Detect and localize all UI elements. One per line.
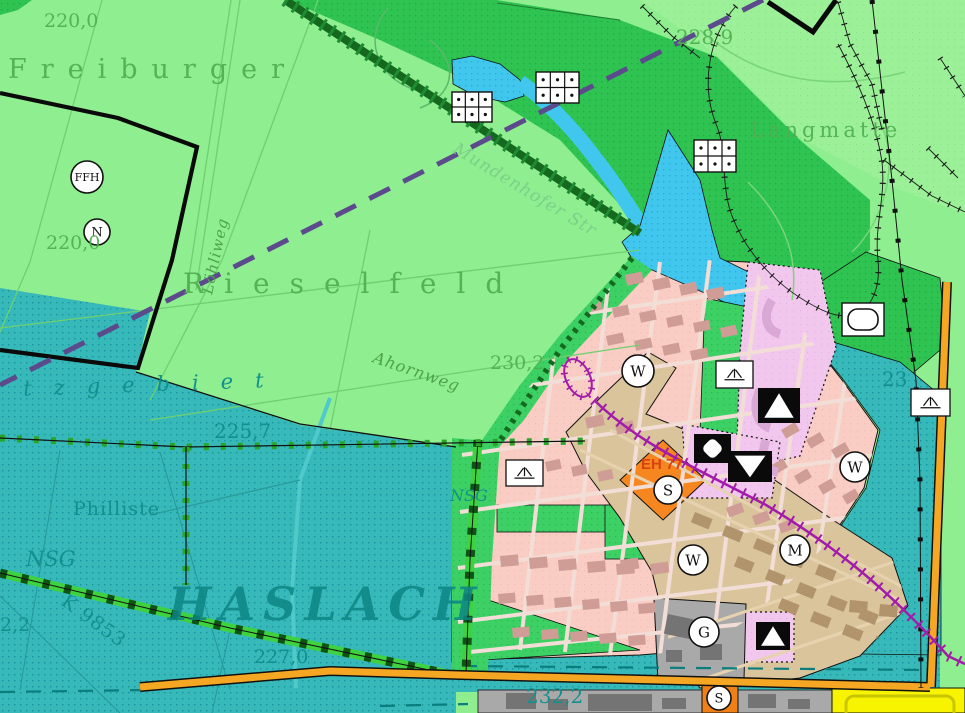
building — [570, 631, 588, 642]
zone-marker-letter: W — [630, 362, 646, 380]
zone-marker-w2: W — [840, 452, 870, 482]
sports-field-icon — [842, 303, 884, 336]
grassland-icon — [911, 389, 950, 416]
zone-marker-ffh: FFH — [71, 161, 103, 193]
label-elev-230-2: 230,2 — [490, 352, 544, 374]
zone-green-arm — [497, 505, 612, 532]
grassland-icon — [716, 361, 753, 388]
grassland-icon — [506, 460, 543, 486]
building — [610, 601, 628, 612]
building — [541, 629, 559, 640]
zone-marker-letter: W — [847, 458, 863, 476]
zone-marker-w1: W — [622, 355, 654, 387]
zone-marker-s1: S — [654, 476, 682, 504]
building — [582, 599, 600, 610]
allotment-garden-icon — [536, 72, 579, 103]
zone-marker-s2: S — [707, 686, 731, 710]
label-haslach: HASLACH — [166, 577, 484, 631]
label-elev-23: 23 — [882, 367, 907, 391]
zone-marker-letter: FFH — [75, 171, 100, 184]
label-eh77: EH 77 — [641, 456, 683, 473]
zone-marker-letter: G — [698, 623, 710, 641]
allotment-garden-icon — [452, 92, 492, 122]
zone-marker-letter: M — [787, 541, 802, 559]
building — [628, 635, 646, 646]
label-freiburger: Freiburger — [8, 54, 298, 85]
building — [587, 560, 606, 573]
building — [662, 698, 686, 709]
building — [879, 604, 898, 618]
zone-marker-letter: W — [685, 551, 701, 569]
label-philliste: Philliste — [73, 498, 160, 520]
building — [498, 593, 516, 604]
label-rieselfeld: Rieselfeld — [183, 267, 523, 300]
label-nsg-b: NSG — [25, 547, 76, 571]
zone-marker-w3: W — [678, 545, 708, 575]
label-nsg-a: NSG — [449, 486, 488, 505]
label-elev-220b: 220,0 — [46, 232, 100, 254]
building — [748, 694, 776, 708]
label-langmatte: Langmatte — [750, 118, 901, 142]
zone-marker-letter: S — [715, 692, 724, 707]
triangle-down-icon — [728, 451, 772, 482]
building — [512, 627, 530, 638]
zone-marker-g: G — [689, 617, 719, 647]
label-elev-228-9: 228,9 — [676, 25, 733, 49]
label-elev-227-0: 227,0 — [254, 646, 308, 668]
building — [849, 600, 868, 614]
map-viewport[interactable]: FFHNWWWMGSS 220,0Freiburger228,9Langmatt… — [0, 0, 965, 713]
zone-industry-yellow — [832, 688, 965, 713]
allotment-garden-icon — [694, 140, 736, 172]
building — [558, 558, 577, 571]
building — [526, 595, 544, 606]
quatrefoil-icon — [694, 434, 731, 463]
zone-marker-m: M — [780, 535, 810, 565]
building — [588, 694, 652, 711]
building — [529, 556, 548, 569]
building — [666, 650, 682, 662]
label-elev-232-2: 232,2 — [526, 684, 583, 708]
zone-marker-letter: S — [663, 481, 673, 499]
camp-site-icon — [756, 622, 790, 650]
building — [788, 699, 810, 709]
building — [638, 603, 656, 614]
label-elev-2-2: 2,2 — [0, 614, 30, 636]
label-elev-220a: 220,0 — [44, 10, 98, 32]
camp-site-icon — [758, 388, 800, 423]
label-elev-225-7: 225,7 — [214, 419, 271, 443]
building — [500, 554, 519, 567]
building — [554, 597, 572, 608]
map-canvas[interactable]: FFHNWWWMGSS 220,0Freiburger228,9Langmatt… — [0, 0, 965, 713]
building — [599, 633, 617, 644]
